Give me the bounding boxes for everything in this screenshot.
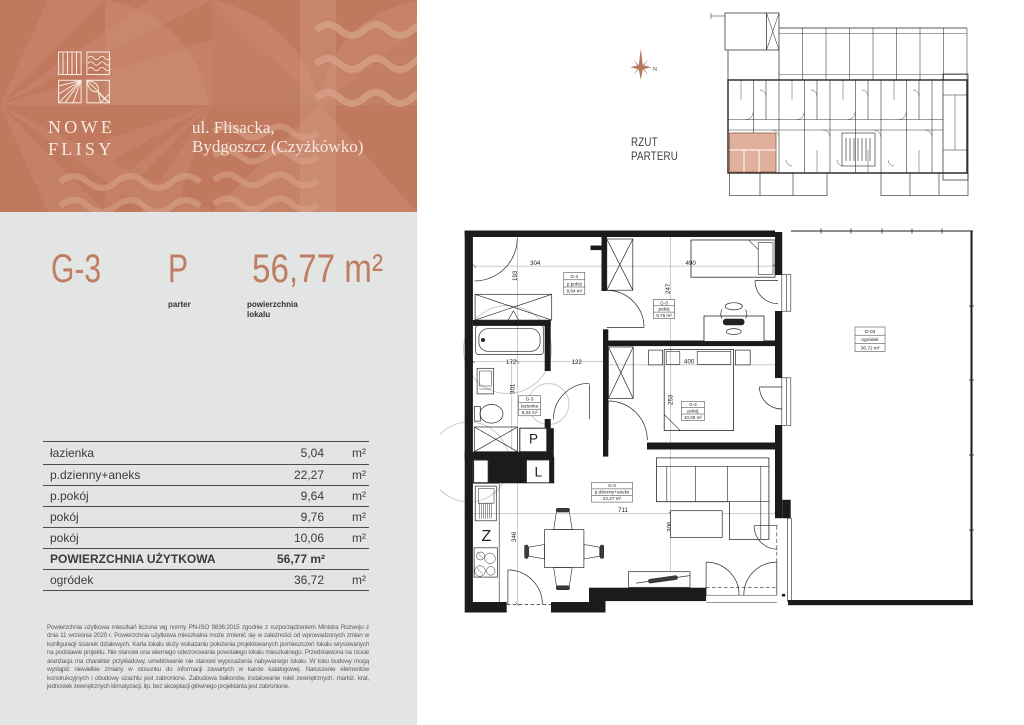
svg-text:711: 711	[618, 507, 628, 514]
svg-text:pokój: pokój	[687, 409, 698, 414]
svg-text:400: 400	[684, 358, 695, 365]
svg-text:253: 253	[668, 394, 675, 405]
svg-text:G-3: G-3	[689, 402, 697, 407]
svg-text:O-03: O-03	[865, 329, 876, 335]
svg-text:36,72 m²: 36,72 m²	[861, 345, 880, 351]
svg-text:122: 122	[572, 359, 583, 366]
svg-text:304: 304	[530, 260, 541, 267]
svg-text:G-3: G-3	[660, 300, 668, 305]
svg-text:G-3: G-3	[526, 397, 534, 402]
svg-text:p.dzienny+aneks: p.dzienny+aneks	[595, 490, 630, 495]
svg-text:G-3: G-3	[608, 483, 616, 488]
svg-text:p.pokój: p.pokój	[567, 281, 582, 286]
svg-text:pokój: pokój	[659, 307, 670, 312]
svg-text:301: 301	[510, 383, 517, 394]
svg-text:Z: Z	[482, 528, 492, 545]
svg-text:172: 172	[506, 359, 517, 366]
svg-text:193: 193	[512, 270, 519, 281]
svg-text:5,04 m²: 5,04 m²	[522, 410, 538, 415]
svg-text:346: 346	[511, 531, 518, 542]
svg-text:L: L	[535, 464, 543, 480]
svg-text:G-3: G-3	[570, 274, 578, 279]
svg-text:łazienka: łazienka	[521, 403, 538, 408]
svg-text:9,76 m²: 9,76 m²	[656, 313, 672, 318]
svg-text:10,06 m²: 10,06 m²	[684, 415, 703, 420]
svg-text:9,64 m²: 9,64 m²	[567, 289, 583, 294]
svg-text:247: 247	[665, 283, 672, 294]
svg-text:N: N	[653, 66, 658, 73]
svg-text:22,27 m²: 22,27 m²	[603, 496, 622, 501]
svg-text:ogródek: ogródek	[861, 337, 879, 343]
svg-text:P: P	[529, 432, 538, 447]
